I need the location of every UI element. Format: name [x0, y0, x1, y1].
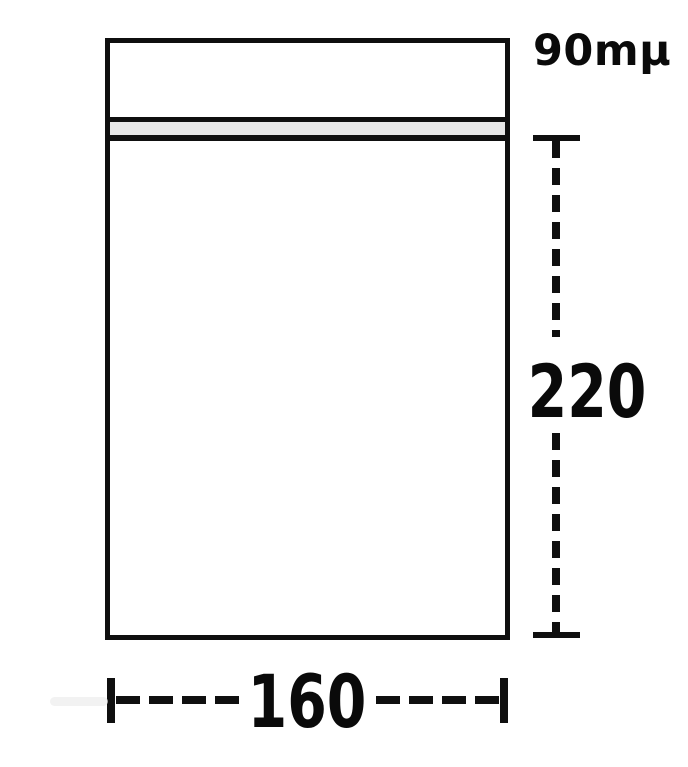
width-dimension-dashed-line-right: [376, 696, 500, 704]
width-dimension-dashed-line-left: [116, 696, 243, 704]
zipper-strip: [110, 122, 505, 135]
height-dimension-dashed-line-upper: [552, 141, 560, 337]
height-dimension-tick-bottom: [533, 632, 580, 638]
width-dimension-tick-right: [500, 678, 508, 723]
thickness-label: 90mμ: [533, 26, 683, 76]
zipper-bottom-line: [105, 135, 510, 141]
watermark-smudge: [50, 697, 108, 706]
height-dimension-dashed-line-lower: [552, 433, 560, 632]
height-label: 220: [540, 360, 634, 424]
width-dimension-tick-left: [107, 678, 115, 723]
bag-dimension-diagram: 90mμ 220 160: [0, 0, 688, 767]
width-label: 160: [260, 670, 354, 734]
